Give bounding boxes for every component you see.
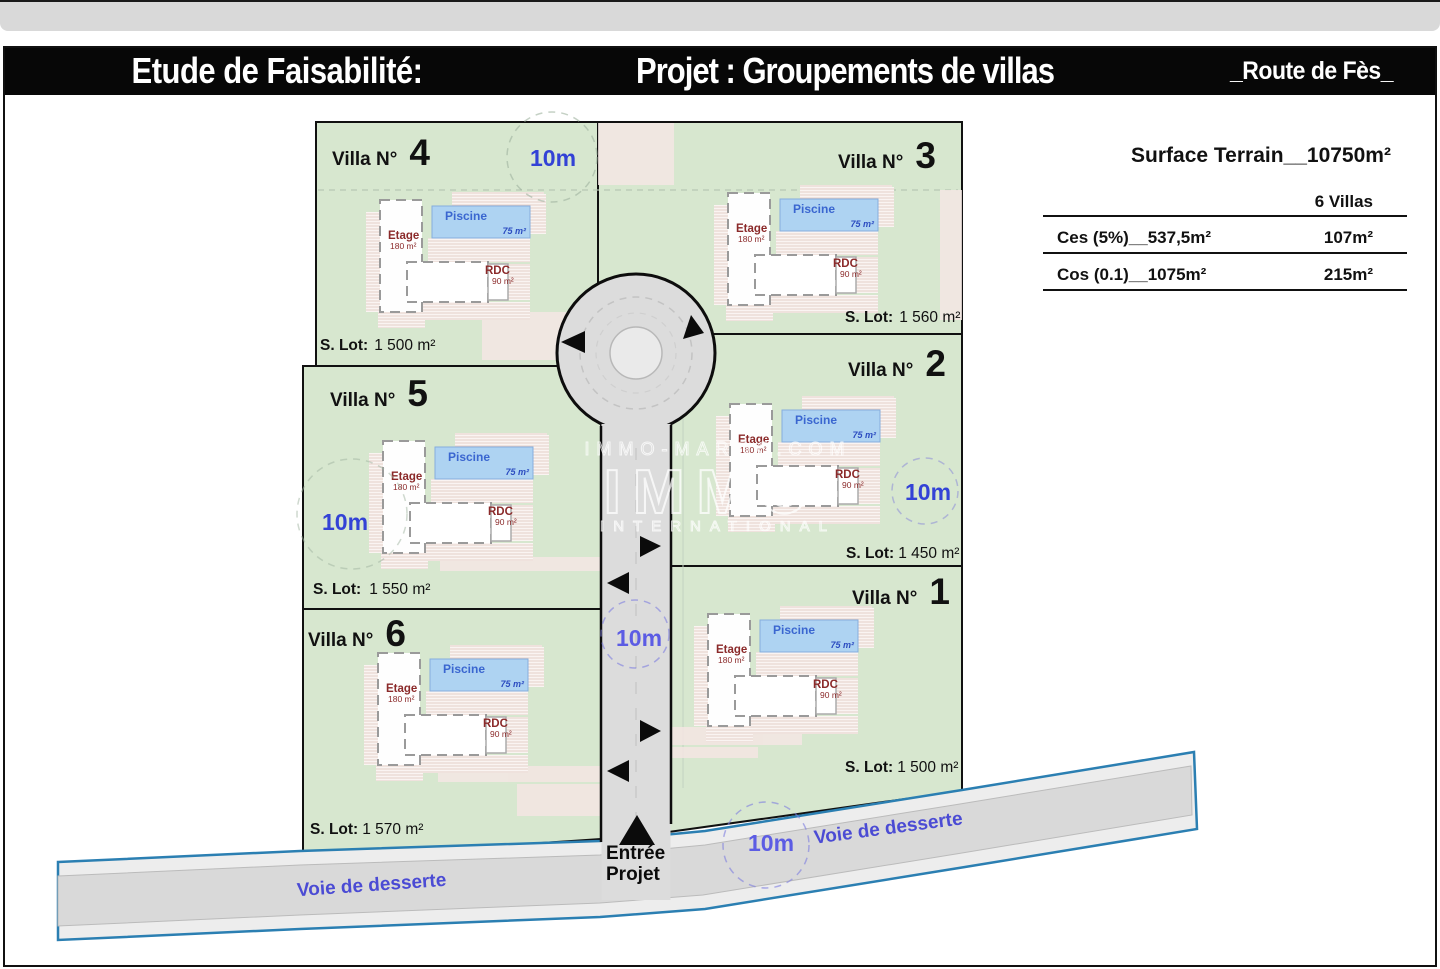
width-label-access-road: 10m	[616, 625, 662, 651]
summary-row-ces: Ces (5%)__537,5m² 107m²	[1043, 217, 1407, 254]
pink-patch	[598, 123, 674, 185]
summary-row-cos: Cos (0.1)__1075m² 215m²	[1043, 254, 1407, 291]
entrance-label-line2: Projet	[606, 864, 661, 885]
house-villa-3	[714, 185, 894, 321]
summary-title: Surface Terrain__10750m²	[1079, 144, 1440, 168]
ces-value: 107m²	[1324, 228, 1407, 248]
roundabout-island	[610, 327, 662, 379]
villa-3-lot-area: S. Lot:1 560 m²	[845, 309, 960, 326]
width-label-service-road: 10m	[748, 830, 794, 856]
summary-table: Surface Terrain__10750m² 6 Villas Ces (5…	[1043, 144, 1407, 291]
villa-2-lot-area: S. Lot:1 450 m²	[846, 545, 959, 562]
pink-patch	[940, 190, 962, 320]
house-villa-6	[364, 645, 544, 781]
villa-6-lot-area: S. Lot:1 570 m²	[310, 821, 423, 838]
villa-5-lot-area: S. Lot:1 550 m²	[313, 581, 430, 598]
pink-patch	[517, 784, 602, 816]
house-villa-5	[369, 433, 549, 569]
width-label-east: 10m	[905, 479, 951, 505]
cos-value: 215m²	[1324, 265, 1407, 285]
house-villa-4	[366, 192, 546, 328]
pink-patch	[672, 747, 758, 758]
summary-column-header: 6 Villas	[1315, 192, 1407, 212]
watermark-line3: INTERNATIONAL	[600, 518, 836, 535]
villa-1-lot-area: S. Lot:1 500 m²	[845, 759, 958, 776]
summary-header-row: 6 Villas	[1043, 190, 1407, 217]
width-label-west: 10m	[322, 509, 368, 535]
cos-label: Cos (0.1)__1075m²	[1043, 265, 1206, 285]
width-label-top: 10m	[530, 145, 576, 171]
entrance-label-line1: Entrée	[606, 843, 665, 864]
watermark-line1: IMMO-MAROC.COM	[585, 439, 852, 459]
villa-4-lot-area: S. Lot:1 500 m²	[320, 337, 435, 354]
watermark: IMMO-MAROC.COM IMMO INTERNATIONAL	[585, 439, 852, 535]
ces-label: Ces (5%)__537,5m²	[1043, 228, 1211, 248]
house-villa-1	[694, 606, 874, 742]
watermark-line2: IMMO	[604, 458, 821, 527]
